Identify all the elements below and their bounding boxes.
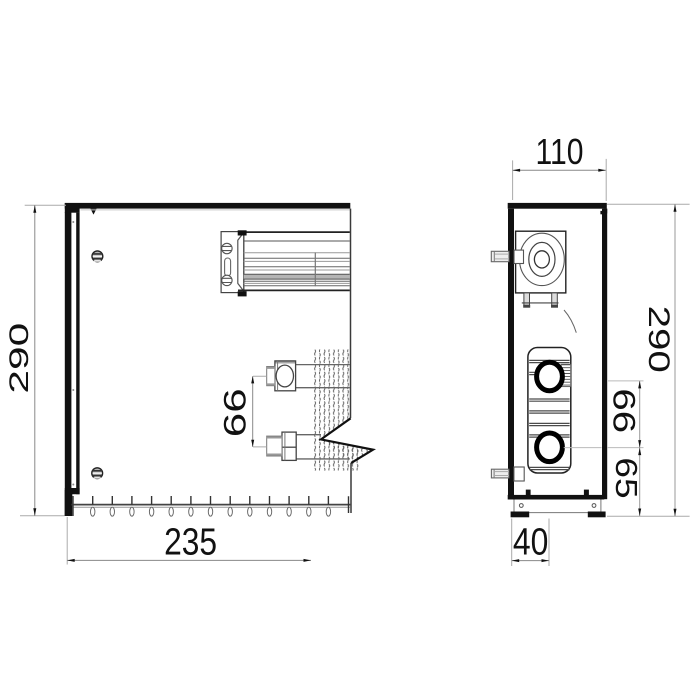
svg-text:110: 110 <box>536 131 584 172</box>
svg-text:290: 290 <box>4 323 34 394</box>
svg-text:66: 66 <box>217 388 253 437</box>
svg-text:40: 40 <box>513 522 549 564</box>
svg-text:66: 66 <box>607 388 643 433</box>
svg-text:290: 290 <box>642 306 674 373</box>
svg-text:235: 235 <box>164 522 217 564</box>
svg-text:65: 65 <box>609 457 643 498</box>
